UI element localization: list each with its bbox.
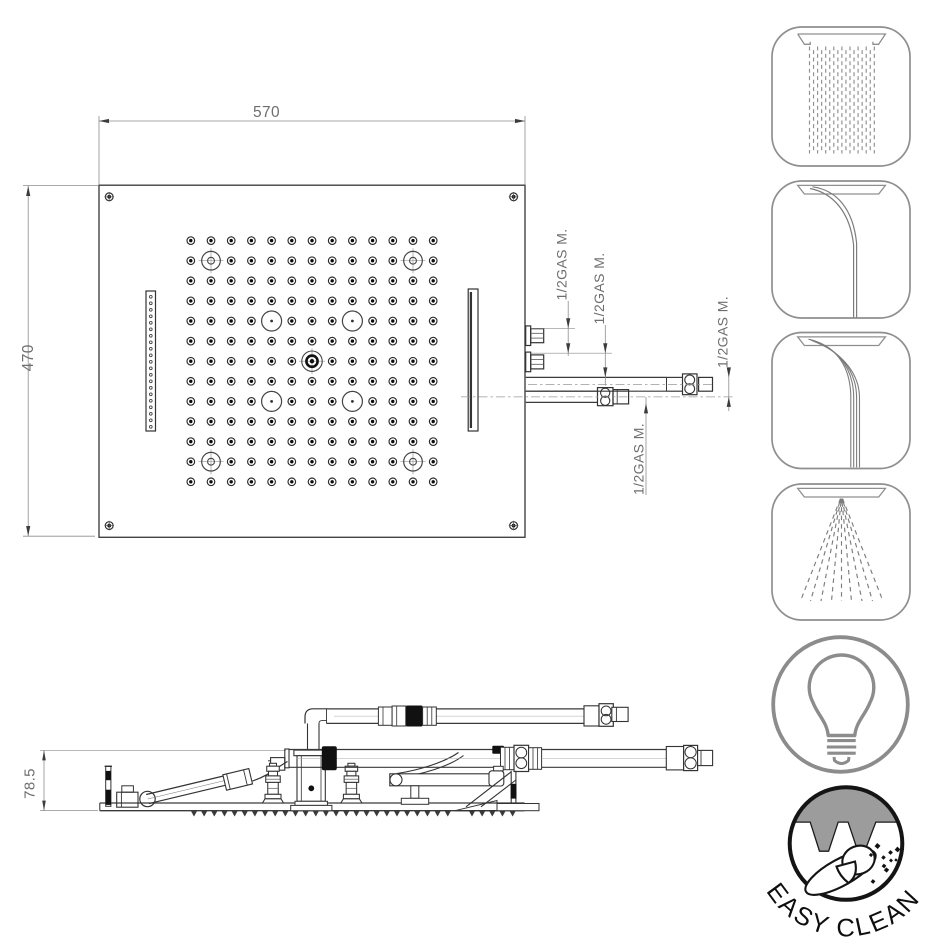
svg-text:470: 470 bbox=[20, 344, 37, 371]
svg-text:1/2GAS M.: 1/2GAS M. bbox=[554, 228, 570, 300]
svg-text:EASY CLEAN: EASY CLEAN bbox=[761, 878, 926, 943]
svg-text:1/2GAS M.: 1/2GAS M. bbox=[714, 296, 730, 368]
svg-text:78.5: 78.5 bbox=[22, 768, 39, 799]
svg-text:1/2GAS M.: 1/2GAS M. bbox=[591, 252, 607, 324]
svg-text:1/2GAS M.: 1/2GAS M. bbox=[630, 423, 646, 495]
svg-text:570: 570 bbox=[253, 104, 280, 121]
